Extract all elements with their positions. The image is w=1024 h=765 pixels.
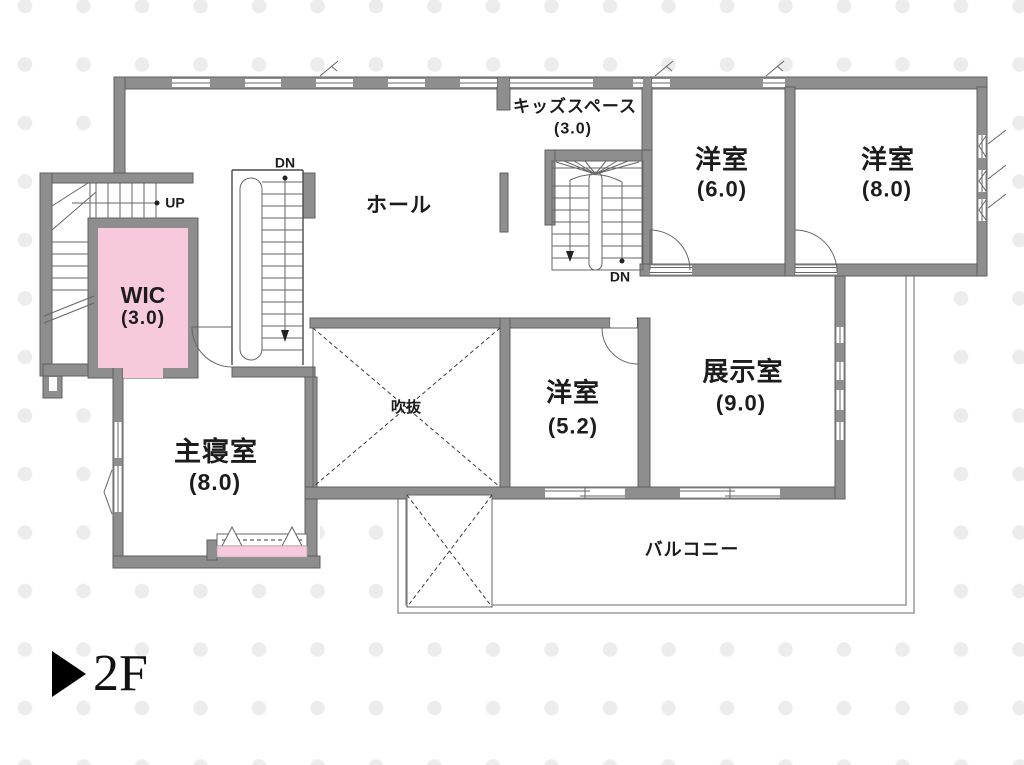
floor-plan-drawing: [0, 0, 1024, 765]
stair-up-label: UP: [165, 196, 184, 211]
room-label-bedroom52: 洋室: [546, 379, 600, 406]
wall: [500, 318, 510, 487]
room-label-wic: WIC: [121, 283, 166, 307]
floor-marker: 2F: [52, 648, 148, 700]
floor-marker-label: 2F: [93, 648, 148, 700]
master-counter: [217, 546, 307, 557]
room-size-kids-space: (3.0): [554, 122, 592, 139]
wall-divider: [785, 87, 795, 276]
wall-exhibition-right: [835, 276, 845, 499]
room-size-exhibition: (9.0): [716, 391, 766, 414]
floor-marker-triangle-icon: [52, 651, 86, 697]
stair-dn-left-label: DN: [275, 156, 295, 171]
floor-plate: [193, 218, 232, 378]
room-size-wic: (3.0): [121, 309, 165, 329]
room-size-bedroom8: (8.0): [862, 177, 912, 200]
wall: [40, 173, 52, 376]
floor-plate-balcony-side: [845, 276, 918, 495]
wall: [114, 77, 125, 183]
wall-stub: [497, 77, 510, 110]
room-label-hall: ホール: [366, 195, 432, 217]
room-label-master: 主寝室: [174, 438, 258, 466]
wall: [303, 173, 315, 218]
room-label-bedroom6: 洋室: [695, 146, 749, 173]
wall-partition: [500, 173, 508, 232]
room-label-exhibition: 展示室: [702, 358, 783, 385]
room-label-balcony: バルコニー: [645, 541, 740, 560]
wall-stair-top: [545, 150, 652, 161]
stair-dn-center-label: DN: [610, 270, 630, 285]
floor-plan-canvas: ホール キッズスペース (3.0) 洋室 (6.0) 洋室 (8.0) WIC …: [0, 0, 1024, 765]
room-label-kids-space: キッズスペース: [513, 98, 637, 116]
wall: [642, 77, 652, 150]
room-size-master: (8.0): [189, 470, 241, 494]
wall: [232, 367, 315, 377]
wall-void-top: [310, 318, 610, 328]
wic-door-gap: [123, 368, 163, 378]
wall: [638, 318, 650, 487]
wall: [40, 173, 193, 183]
room-label-bedroom8: 洋室: [861, 146, 915, 173]
room-label-void: 吹抜: [391, 400, 421, 416]
wall: [207, 540, 217, 560]
room-size-bedroom6: (6.0): [697, 177, 747, 200]
room-size-bedroom52: (5.2): [548, 414, 598, 437]
